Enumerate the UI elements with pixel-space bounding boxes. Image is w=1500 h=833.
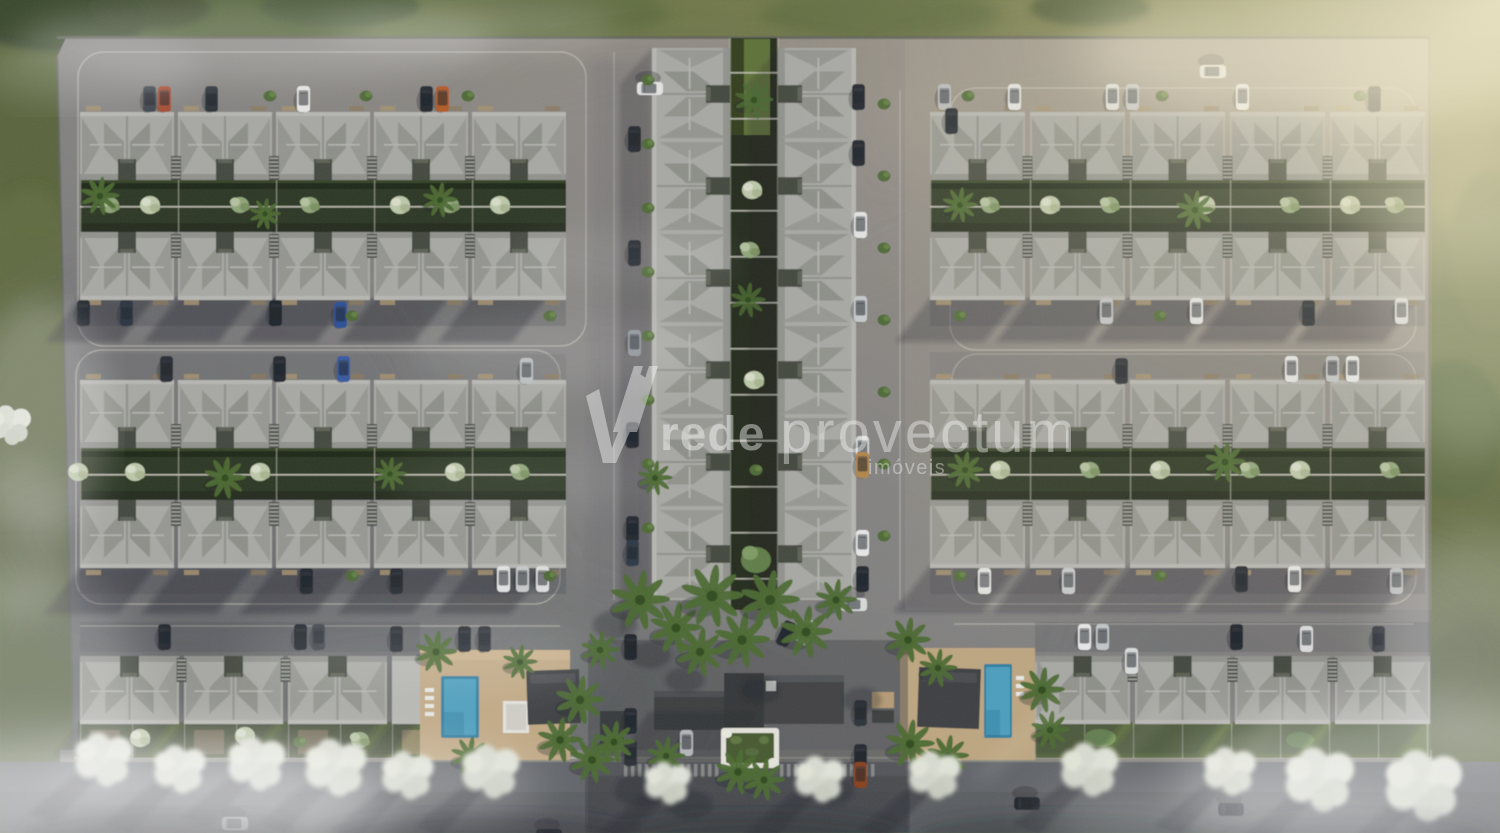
svg-text:imóveis: imóveis bbox=[868, 457, 946, 479]
svg-text:provectum: provectum bbox=[780, 400, 1078, 465]
svg-text:rede: rede bbox=[660, 408, 765, 461]
